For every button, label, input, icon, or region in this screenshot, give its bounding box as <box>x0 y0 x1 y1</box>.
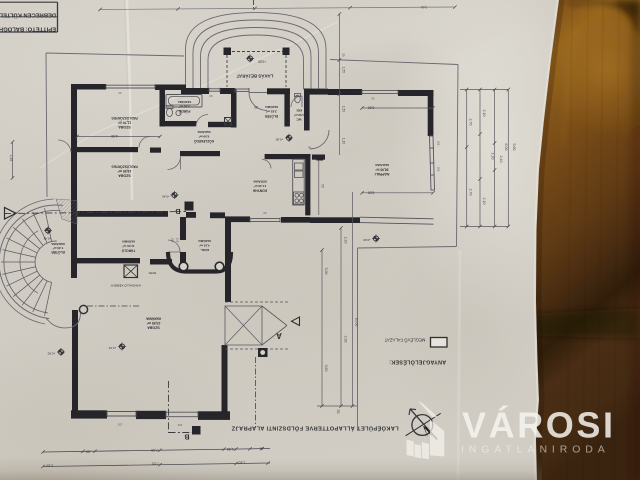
svg-text:50: 50 <box>321 184 325 188</box>
svg-text:KONYHA: KONYHA <box>252 189 267 193</box>
svg-text:2,40: 2,40 <box>499 156 503 163</box>
svg-text:1,50 m²: 1,50 m² <box>294 113 304 117</box>
svg-text:150: 150 <box>177 423 182 427</box>
svg-text:1,50: 1,50 <box>341 106 345 112</box>
svg-text:1,30: 1,30 <box>341 138 345 144</box>
svg-text:KERÁMIA: KERÁMIA <box>265 105 278 110</box>
svg-text:+0,45: +0,45 <box>43 237 51 241</box>
svg-text:KANDALLÓ KÉMÉNY: KANDALLÓ KÉMÉNY <box>110 284 140 289</box>
svg-text:TÁROLÓ: TÁROLÓ <box>121 249 135 254</box>
svg-text:LAKÁS BEJÁRAT: LAKÁS BEJÁRAT <box>236 74 273 79</box>
svg-text:PADLÓSZŐNYEG: PADLÓSZŐNYEG <box>111 116 138 121</box>
svg-text:FÜRDŐ: FÜRDŐ <box>178 109 190 114</box>
svg-text:KERÁMIA: KERÁMIA <box>122 239 135 244</box>
svg-text:SZOBA: SZOBA <box>118 174 131 178</box>
svg-text:90: 90 <box>209 94 212 98</box>
svg-text:7,05: 7,05 <box>151 448 158 452</box>
svg-text:55: 55 <box>254 105 258 109</box>
svg-text:1,35: 1,35 <box>9 155 13 162</box>
svg-text:KÖZL.: KÖZL. <box>200 248 209 252</box>
svg-text:1,20: 1,20 <box>491 153 495 160</box>
svg-text:KERÁMIA: KERÁMIA <box>50 242 64 247</box>
svg-text:210: 210 <box>176 238 180 243</box>
svg-text:KERÁMIA: KERÁMIA <box>252 179 266 184</box>
svg-text:11,70 m²: 11,70 m² <box>117 121 131 125</box>
svg-text:2,70: 2,70 <box>469 119 473 126</box>
svg-text:WC: WC <box>296 118 302 122</box>
svg-text:100: 100 <box>171 238 175 243</box>
svg-text:ÉPÍTTETŐ: BALOGH LÁSZLÓ: ÉPÍTTETŐ: BALOGH LÁSZLÓ <box>0 26 56 34</box>
svg-text:50/50: 50/50 <box>148 271 156 275</box>
svg-text:2,10: 2,10 <box>482 198 486 205</box>
svg-text:6,59 m²: 6,59 m² <box>199 135 209 139</box>
svg-text:KERÁMIA: KERÁMIA <box>177 100 191 105</box>
svg-text:+0,15: +0,15 <box>108 346 116 350</box>
svg-text:36,00 m²: 36,00 m² <box>376 168 389 172</box>
svg-text:5,60: 5,60 <box>512 144 516 151</box>
svg-text:10,00: 10,00 <box>355 318 359 327</box>
svg-text:+0,00: +0,00 <box>47 352 55 356</box>
svg-text:0,66: 0,66 <box>421 5 427 9</box>
svg-text:1,55: 1,55 <box>227 447 234 451</box>
svg-text:4,10 m²: 4,10 m² <box>199 244 209 248</box>
svg-text:PADLÓSZŐNYEG: PADLÓSZŐNYEG <box>111 164 138 169</box>
svg-text:4,00: 4,00 <box>111 134 118 138</box>
svg-text:,30: ,30 <box>260 447 265 451</box>
svg-text:150: 150 <box>437 141 441 146</box>
svg-text:90: 90 <box>371 96 374 100</box>
svg-text:5,00: 5,00 <box>324 268 328 275</box>
svg-text:5,03 m²: 5,03 m² <box>179 105 190 109</box>
svg-text:ANYAGJELÖLÉSEK:: ANYAGJELÖLÉSEK: <box>389 358 446 366</box>
svg-text:+0,60: +0,60 <box>275 137 283 141</box>
svg-text:SZOBA: SZOBA <box>118 125 131 129</box>
svg-text:90: 90 <box>263 211 266 215</box>
svg-text:KERÁMIA: KERÁMIA <box>145 316 160 321</box>
svg-text:DEBRECEN KÜLTELEK 23.: DEBRECEN KÜLTELEK 23. <box>0 12 56 19</box>
svg-text:2,10: 2,10 <box>482 110 486 117</box>
svg-text:6,00: 6,00 <box>504 144 508 151</box>
svg-text:KÖZLEKEDŐ: KÖZLEKEDŐ <box>193 139 214 144</box>
svg-text:18,50 m²: 18,50 m² <box>117 169 131 173</box>
svg-text:2,20: 2,20 <box>344 237 348 244</box>
svg-text:23,50 m²: 23,50 m² <box>146 321 160 325</box>
svg-text:SZOBA: SZOBA <box>147 326 160 330</box>
svg-text:150: 150 <box>437 167 441 172</box>
svg-text:2,70: 2,70 <box>469 189 473 196</box>
svg-text:,30: ,30 <box>86 449 91 453</box>
svg-text:LAKÓÉPÜLET ÁLLAPOTTERVE FÖLDSZ: LAKÓÉPÜLET ÁLLAPOTTERVE FÖLDSZINTI ALAPR… <box>231 425 398 433</box>
svg-text:KERÁMIA: KERÁMIA <box>197 130 210 135</box>
svg-text:3,82 m²: 3,82 m² <box>266 110 276 114</box>
svg-text:90: 90 <box>308 146 311 150</box>
svg-text:+0,00: +0,00 <box>363 238 371 242</box>
svg-text:35: 35 <box>336 410 340 414</box>
svg-text:NAPPALI: NAPPALI <box>375 172 390 176</box>
svg-text:6,00: 6,00 <box>368 190 375 194</box>
svg-text:3,60: 3,60 <box>324 365 328 372</box>
svg-text:+0,60: +0,60 <box>258 60 266 64</box>
svg-text:2,30: 2,30 <box>344 336 348 343</box>
svg-text:B: B <box>175 207 180 214</box>
svg-text:A: A <box>276 331 282 340</box>
svg-text:KERÁMIA: KERÁMIA <box>374 163 389 168</box>
svg-text:150: 150 <box>117 423 122 427</box>
svg-text:1,55: 1,55 <box>341 67 345 73</box>
svg-text:90: 90 <box>118 91 121 95</box>
svg-text:+0,45: +0,45 <box>162 195 170 199</box>
svg-text:INGATLANIRODA: INGATLANIRODA <box>461 444 610 456</box>
svg-text:25: 25 <box>341 53 345 57</box>
svg-text:11,50 m²: 11,50 m² <box>123 244 135 248</box>
svg-text:KER.: KER. <box>296 108 303 112</box>
svg-text:6,00: 6,00 <box>368 106 375 110</box>
svg-text:MEGLÉVŐ FALAZAT: MEGLÉVŐ FALAZAT <box>384 338 425 343</box>
svg-text:17,40 m²: 17,40 m² <box>254 184 267 188</box>
svg-text:VÁROSI: VÁROSI <box>462 405 616 446</box>
svg-text:B: B <box>184 433 189 440</box>
svg-text:ELŐTÉR: ELŐTÉR <box>264 114 278 119</box>
